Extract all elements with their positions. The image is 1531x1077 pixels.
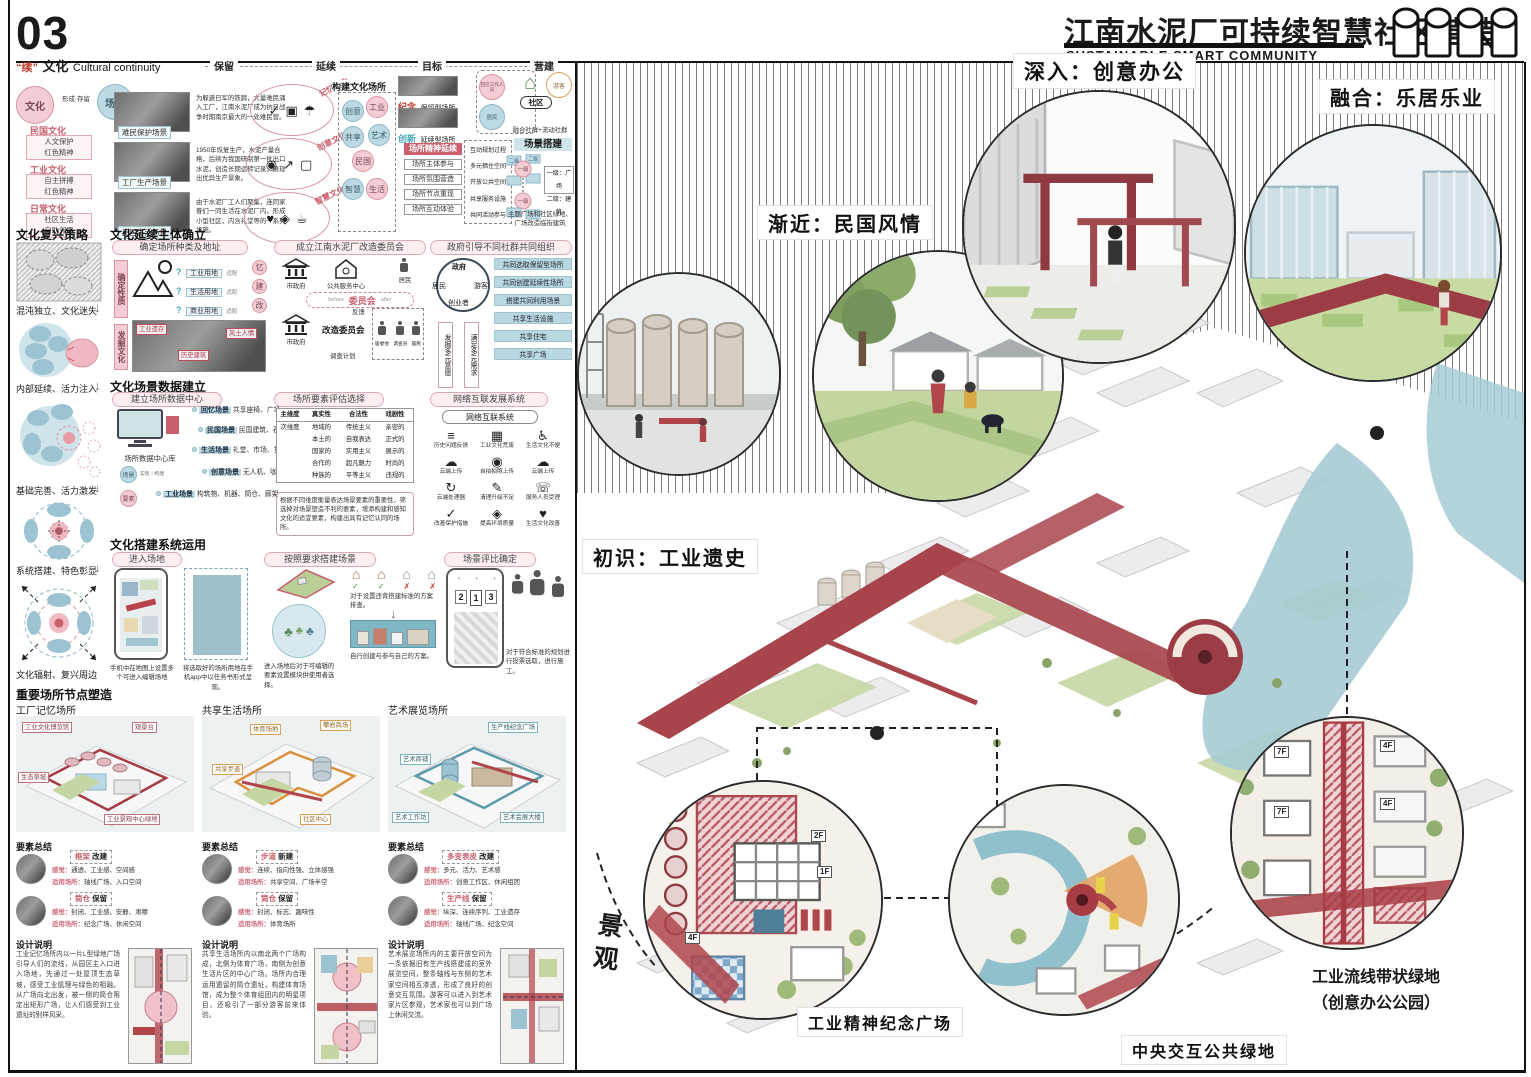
place-node-republic: 民国	[352, 150, 374, 172]
check-icon: ✓	[428, 506, 474, 521]
check-icon: ✓	[378, 582, 385, 591]
site-tag: 历史建筑	[178, 350, 209, 361]
link-realize: 实现	[140, 472, 150, 477]
network-label: 生活文化改善	[520, 521, 566, 528]
strategy-diagram-3	[16, 398, 102, 482]
vote-avatars: ◔◔◔	[456, 576, 496, 583]
view-circle-industrial-history	[577, 272, 781, 476]
place-node-smart: 智慧	[342, 178, 364, 200]
table-header: 戏剧性	[377, 409, 413, 421]
label-central-green: 中央交互公共绿地	[1122, 1036, 1286, 1064]
network-cell: ✓改善保护措施	[428, 506, 474, 528]
cross-icon: ✗	[429, 582, 436, 591]
voter-person-icon	[530, 570, 538, 589]
land-row: ? 生活用地 适配	[176, 281, 237, 299]
feel-value: 纵深、连续序列、工业遗存	[443, 909, 520, 916]
frame-left	[8, 0, 10, 1073]
land-type: 工业用地	[186, 269, 222, 278]
land-type: 商业用地	[186, 307, 222, 316]
scene-items: 构筑物、机器、筒仓、廊架	[197, 491, 279, 498]
element-verb: 保留	[472, 894, 487, 903]
enter-caption-1: 手机中在地图上设置多个可进入编辑场地	[108, 664, 176, 683]
scene-items: 共享座椅、广场	[233, 407, 281, 414]
guide-item: 共同创建延续性场所	[494, 276, 572, 288]
idea-icon: ◉	[266, 157, 277, 172]
bullet-icon	[192, 447, 197, 452]
phone-map-screen	[120, 578, 162, 652]
rank-box: 3	[485, 590, 497, 604]
committee-members: 居委会 调查员 居民	[372, 308, 424, 360]
house-icon: ⌂	[428, 566, 436, 582]
plan-circle-memorial-plaza: 2F 1F 4F	[643, 780, 883, 1020]
monitor-icon: ▢	[300, 157, 312, 172]
scene-data-row: 工业场景 构筑物、机器、筒仓、廊架	[156, 488, 278, 499]
table-body: 次维度 地域的 本土的 国家的 合作的 种族的 传统主义 自我表达 实用主义 超…	[277, 422, 413, 482]
evaluate-pill: 场所要素评估选择	[274, 392, 384, 407]
label-linear-green-line1: 工业流线带状绿地	[1306, 962, 1446, 988]
vote-caption: 对于符合标准的规划进行投票选取，进行施工。	[506, 648, 572, 676]
summary-title: 要素总结	[16, 840, 52, 853]
hub-label: 场所数据中心库	[112, 454, 188, 465]
question-mark: ?	[176, 305, 182, 315]
vote-ranks: 2 1 3	[455, 590, 497, 606]
evaluate-note: 根据不同维度衡量表达场景要素的重要性，筛选掉对场景塑造不利的要素，增添构建和感知…	[276, 492, 414, 536]
network-label: 服务人员受理	[520, 495, 566, 502]
network-label: 云端上传	[428, 469, 474, 476]
flow-label-goal: 目标	[418, 58, 446, 73]
guide-item: 共享住宅	[494, 330, 572, 342]
level2-node: 二级	[528, 156, 538, 163]
place-tag: 共享步道	[212, 764, 243, 775]
network-cell: ☁云端上传	[520, 454, 566, 476]
network-label: 云端处理器	[428, 495, 474, 502]
element-tagbox: 生产线 保留	[442, 892, 492, 906]
task-doc	[193, 575, 241, 655]
scene-tag: 回忆场景	[199, 407, 231, 414]
avatar-icon: ◔	[492, 576, 496, 583]
guide-pill: 政府引导不同社群共同组织	[430, 240, 572, 255]
cycle-gov: 政府	[452, 262, 466, 272]
goal-list: 互动规划过程 多元栖住空间 开放公共空间 共享服务设施 共同活动参与	[464, 140, 512, 224]
culture-item: 人文保护	[27, 136, 91, 147]
element-verb: 保留	[92, 894, 107, 903]
map-green	[140, 580, 158, 590]
element-tagbox: 多变表皮 改建	[442, 850, 499, 864]
map-water	[122, 582, 138, 596]
label-linear-green: 工业流线带状绿地 （创意办公公园）	[1306, 962, 1446, 1014]
plan-label: 调查计划	[330, 352, 370, 361]
feel-label: 感觉：	[52, 909, 71, 916]
network-cell: ♿生活文化不便	[520, 428, 566, 450]
feel-label: 感觉：	[424, 867, 443, 874]
place-tag: 攀岩商场	[320, 720, 351, 731]
network-label: 提高环境质量	[474, 521, 520, 528]
list-icon: ≡	[428, 428, 474, 443]
culture-item: 社区生活	[27, 214, 91, 225]
data-center-computer-icon	[116, 408, 182, 452]
table-cell: 国家的	[303, 446, 340, 458]
table-header: 主维度	[277, 409, 303, 421]
strategy-title: 文化复兴策略	[16, 226, 88, 243]
design-text: 工业记忆场所内以一片L型绿地广场引导人们的流线，从园区主入口进入场地，先通过一处…	[16, 950, 120, 1022]
strategy-step: 内部延续、活力注入	[16, 382, 97, 395]
goal-item: 开放公共空间	[470, 177, 506, 186]
site-vertical-label-2: 发掘文化	[114, 324, 128, 370]
use-value: 共享空间、广场半空	[270, 879, 328, 886]
continuity-title-en: Cultural continuity	[73, 62, 160, 74]
house-icon: ⌂	[402, 566, 410, 582]
down-arrow-icon: ↓	[94, 300, 101, 315]
plan-memorial	[645, 782, 881, 1018]
callout-republic-charm: 渐近：民国风情	[758, 206, 932, 239]
strategy-step: 混沌独立、文化迷失	[16, 304, 97, 317]
after-label: after	[381, 297, 392, 303]
feel-label: 感觉：	[52, 867, 71, 874]
table-cell: 时尚的	[377, 458, 413, 470]
robot-icon: ♥	[266, 211, 274, 226]
design-plan-thumb	[314, 948, 378, 1064]
committee-pill: 成立江南水泥厂改造委员会	[274, 240, 426, 255]
floor-label: 2F	[811, 830, 826, 842]
committee-flow: before 委员会 after	[306, 292, 414, 308]
plan-circle-linear-green: 7F 4F 7F 4F	[1230, 716, 1464, 950]
wheelchair-icon: ♿	[520, 428, 566, 443]
land-row: ? 商业用地 适配	[176, 300, 237, 318]
table-cell: 地域的	[303, 422, 340, 434]
element-thumb	[202, 896, 232, 926]
feel-value: 封闭、工业感、安静、肃穆	[71, 909, 148, 916]
element-tag: 框架	[75, 852, 90, 861]
strategy-step: 系统搭建、特色彰显	[16, 564, 97, 577]
iso-site-tile	[268, 566, 338, 600]
table-cell: 超凡魅力	[340, 458, 377, 470]
land-type: 生活用地	[186, 288, 222, 297]
voter-person-icon	[552, 576, 560, 595]
guide-item: 共享广场	[494, 348, 572, 360]
vote-pill: 场景评比确定	[444, 552, 536, 567]
down-arrow-icon: ↓	[390, 606, 397, 621]
culture-item: 自主拼搏	[27, 175, 91, 186]
element-verb: 改建	[92, 852, 107, 861]
tree-icon: ♣	[296, 625, 303, 637]
phone-map	[114, 568, 168, 660]
place-tag: 艺术工作坊	[392, 812, 429, 823]
table-cell: 亲密的	[377, 422, 413, 434]
scheme-marks: ✓ ✓ ✗ ✗	[352, 582, 436, 591]
rank-box: 1	[470, 590, 482, 606]
down-arrow-icon: ↓	[94, 378, 101, 393]
house-icon: ⌂	[352, 566, 360, 582]
spirit-item: 场所主体参与	[404, 159, 462, 170]
culture-item: 红色精神	[27, 147, 91, 158]
resident-person-icon	[400, 258, 408, 277]
land-target: 改	[252, 298, 267, 313]
design-text: 共享生活场所内以南北两个广场构成，北侧为体育广场，南侧为创意生活片区的中心广场。…	[202, 950, 306, 1022]
feel-value: 连续、指向性强、立体感强	[257, 867, 334, 874]
bullet-icon	[202, 469, 207, 474]
service-center-icon	[334, 258, 358, 280]
map-road	[126, 598, 157, 611]
goal-item: 共享服务设施	[470, 194, 506, 203]
brush-icon: ✎	[474, 480, 520, 495]
scene-small-node: 场景	[120, 466, 137, 483]
scene-build-legend: 一级：广场 二级：建筑	[544, 166, 574, 194]
process-icon: ↻	[428, 480, 474, 495]
network-label: 云端上传	[520, 469, 566, 476]
frame-bottom	[8, 1070, 1526, 1073]
cross-icon: ✗	[404, 582, 411, 591]
strategy-diagram-2	[16, 320, 102, 380]
page-number: 03	[16, 6, 69, 60]
goal-item: 互动规划过程	[470, 145, 506, 154]
nodes-title: 重要场所节点塑造	[16, 686, 112, 703]
table-cell: 正式的	[377, 434, 413, 446]
street-house	[373, 628, 387, 645]
use-value: 轴线广场、入口空间	[84, 879, 142, 886]
resident-label: 居民	[392, 276, 418, 285]
place-name: 艺术展览场所	[388, 702, 448, 717]
mountain-icon	[132, 258, 174, 300]
land-target: 忆	[252, 260, 267, 275]
map-plaza	[124, 618, 138, 632]
hub-links: 实现｜构建	[140, 470, 164, 477]
network-label: 工业文化荒废	[474, 443, 520, 450]
view-circle-happy-living	[1244, 124, 1502, 382]
element-tag: 步道	[261, 852, 276, 861]
use-label: 适用场所：	[52, 921, 84, 928]
tree-icon: ♣	[306, 624, 314, 638]
scheme-houses: ⌂ ⌂ ⌂ ⌂	[352, 566, 436, 582]
link-build: 构建	[154, 472, 164, 477]
element-tag: 筒仓	[261, 894, 276, 903]
person-icon: ☂	[304, 103, 316, 118]
continuity-title-cn: 文化	[42, 59, 68, 74]
street-house	[407, 629, 429, 645]
network-label: 自拍拍照上传	[474, 469, 520, 476]
bullet-icon	[156, 491, 161, 496]
place-image-art-exhibition: 艺术商铺 生产线纪念广场 艺术工作坊 艺术会展大楼	[388, 716, 566, 832]
service-center-label: 公共服务中心	[324, 282, 368, 291]
floor-label: 4F	[1380, 798, 1395, 810]
place-tag: 工业景观中心绿地	[104, 814, 160, 825]
feel-label: 感觉：	[238, 909, 257, 916]
place-tag: 社区中心	[300, 814, 331, 825]
scene-creative	[964, 92, 1234, 362]
table-cell: 展示的	[377, 446, 413, 458]
table-cell: 平等主义	[340, 470, 377, 482]
table-cell: 传统主义	[340, 422, 377, 434]
community-pill: 社区	[520, 96, 552, 109]
table-cell: 自我表达	[340, 434, 377, 446]
network-cell: ◉自拍拍照上传	[474, 454, 520, 476]
use-value: 轴线广场、纪念空间	[456, 921, 514, 928]
member-label: 居委会	[375, 340, 389, 347]
label-memorial-plaza: 工业精神纪念广场	[798, 1008, 962, 1036]
bullet-icon	[192, 407, 197, 412]
element-tag: 生产线	[447, 894, 470, 903]
network-box: 网络互联系统	[442, 410, 538, 424]
cloud-upload-icon: ☁	[428, 454, 474, 469]
floor-label: 7F	[1274, 746, 1289, 758]
place-node-share: 共享	[342, 126, 364, 148]
spirit-item: 场所节点重现	[404, 189, 462, 200]
member-label: 调查员	[393, 340, 407, 347]
place-spirit-banner: 场所精神延续	[404, 143, 462, 155]
network-cell: ↻云端处理器	[428, 480, 474, 502]
element-thumb	[388, 896, 418, 926]
medic-icon: ▣	[285, 103, 297, 118]
scene-industrial	[579, 274, 779, 474]
photo-caption: 工厂生产场景	[118, 176, 171, 189]
network-label: 历史问题反馈	[428, 443, 474, 450]
avatar-icon: ◔	[474, 576, 478, 583]
map-blocks	[142, 616, 158, 634]
site-tag: 风土人情	[226, 328, 257, 339]
strategy-step: 基础完善、活力激发	[16, 484, 97, 497]
guide-item: 搭建共同利用场景	[494, 294, 572, 306]
rank-box: 2	[455, 590, 467, 604]
committee-label: 委员会	[349, 294, 376, 307]
use-value: 体育场所	[270, 921, 296, 928]
table-col-authenticity: 地域的 本土的 国家的 合作的 种族的	[303, 422, 340, 482]
strategy-diagram-4	[16, 500, 102, 562]
table-subdim: 次维度	[277, 422, 303, 482]
table-header-row: 主维度 真实性 合法性 戏剧性	[277, 409, 413, 422]
worker-role-node: 回迁工作人员	[479, 74, 505, 100]
cycle-entrepreneur: 创业者	[448, 298, 469, 308]
network-cell: ☁云端上传	[428, 454, 474, 476]
enter-caption-2: 将选取好的场所用地在手机app中以任务书形式呈现。	[182, 664, 254, 692]
culture-group-items: 人文保护 红色精神	[26, 135, 92, 160]
network-label: 生活文化不便	[520, 443, 566, 450]
element-thumb	[16, 854, 46, 884]
guide-vertical-2: 满足多元需求	[464, 322, 479, 388]
member: 居民	[411, 321, 421, 347]
place-tag: 生产线纪念广场	[488, 722, 538, 733]
use-label: 适用场所：	[424, 921, 456, 928]
element-tag: 多变表皮	[447, 852, 477, 861]
floor-label: 4F	[685, 932, 700, 944]
place-node-industry: 工业	[366, 96, 388, 118]
system-use-title: 文化搭建系统运用	[110, 536, 206, 553]
build-caption-3: 自行创建与参与自己的方案。	[350, 652, 436, 661]
avatar-icon: ◔	[456, 576, 460, 583]
level1-node: 一级	[517, 165, 529, 173]
feel-label: 感觉：	[238, 867, 257, 874]
strategy-step: 文化辐射、复兴周边	[16, 668, 97, 681]
culture-group-items: 自主拼搏 红色精神	[26, 174, 92, 199]
element-thumb	[202, 854, 232, 884]
scene-tag: 生活场景	[199, 447, 231, 454]
element-verb: 新建	[278, 852, 293, 861]
member: 调查员	[393, 321, 407, 347]
street-house	[391, 632, 403, 645]
culture-node: 文化	[16, 86, 54, 124]
place-tag: 工业文化博览馆	[22, 722, 72, 733]
table-header: 真实性	[303, 409, 340, 421]
plan-circle-central-green	[948, 784, 1180, 1016]
design-text: 艺术展览场所内的主要开放空间为一条依据旧有生产线搭建成的室外展览空间，整条轴线与…	[388, 950, 492, 1022]
share-icon: ↗	[283, 157, 294, 172]
use-value: 创意工作区、休闲组团	[456, 879, 520, 886]
cycle-resident: 居民	[432, 281, 446, 291]
floor-label: 7F	[1274, 806, 1289, 818]
check-icon: ✓	[352, 582, 359, 591]
spirit-item: 场所氛围营造	[404, 174, 462, 185]
shield-icon: ◈	[280, 211, 290, 226]
use-label: 适用场所：	[52, 879, 84, 886]
scene-data-row: 民国场景 民国建筑、石路	[198, 424, 286, 435]
scene-build-title: 场景搭建	[514, 138, 572, 151]
community-caption: 融合社群+流动社群	[506, 126, 574, 135]
place-image-shared-life: 体育场地 攀岩商场 共享步道 社区中心	[202, 716, 380, 832]
government-bank-icon	[282, 258, 310, 280]
vote-plan-preview	[454, 612, 498, 664]
network-label: 清理升级不足	[474, 495, 520, 502]
network-cell: ☏服务人员受理	[520, 480, 566, 502]
spirit-item: 场所互动体验	[404, 204, 462, 215]
view-circle-creative-office	[962, 90, 1236, 364]
callout-industrial-history: 初识：工业遗史	[583, 540, 757, 573]
place-node-art: 艺术	[368, 124, 390, 146]
design-plan-thumb	[500, 948, 564, 1064]
flow-label-retain: 保留	[210, 58, 238, 73]
build-caption-1: 进入场地后对于可编辑的要素设置模块供使用者选择。	[264, 662, 340, 690]
use-label: 适用场所：	[424, 879, 456, 886]
network-cell: ♥生活文化改善	[520, 506, 566, 528]
place-node-creative: 创意	[342, 100, 364, 122]
element-tagbox: 筒仓 保留	[70, 892, 112, 906]
culture-item: 红色精神	[27, 186, 91, 197]
down-arrow-icon: ↓	[94, 480, 101, 495]
frame-right	[1524, 62, 1526, 1070]
place-tag: 体育场地	[250, 724, 281, 735]
floor-label: 4F	[1380, 740, 1395, 752]
continuity-quote: “续”	[16, 62, 38, 74]
network-cell: ▦工业文化荒废	[474, 428, 520, 450]
table-cell: 合作的	[303, 458, 340, 470]
network-cell: ✎清理升级不足	[474, 480, 520, 502]
place-tag: 艺术商铺	[400, 754, 431, 765]
use-label: 适用场所：	[238, 879, 270, 886]
feel-label: 感觉：	[424, 909, 443, 916]
plan-central-green	[950, 786, 1178, 1014]
feel-value: 通透、工业感、空间感	[71, 867, 135, 874]
callout-happy-living: 融合：乐居乐业	[1320, 80, 1494, 113]
floor-label: 1F	[817, 866, 832, 878]
callout-creative-office: 深入：创意办公	[1014, 54, 1195, 88]
legend-level1: 一级：广场	[545, 167, 573, 193]
table-cell: 本土的	[303, 434, 340, 446]
voter-person-icon	[512, 574, 520, 593]
place-tag: 艺术会展大楼	[500, 812, 544, 823]
scene-living	[1246, 126, 1500, 380]
cement-silos-logo	[1390, 4, 1522, 58]
headset-icon: ☏	[520, 480, 566, 495]
evaluate-table: 主维度 真实性 合法性 戏剧性 次维度 地域的 本土的 国家的 合作的 种族的 …	[276, 408, 414, 483]
council-label: 改造委员会	[322, 324, 365, 336]
strategy-diagram-5	[16, 580, 102, 666]
coffee-icon: ☕	[296, 211, 308, 226]
photo-caption: 难民保护场景	[118, 126, 171, 139]
government-bank-icon	[282, 314, 310, 336]
element-thumb	[388, 854, 418, 884]
level2-node: 二级	[509, 158, 519, 165]
network-label: 改善保护措施	[428, 521, 474, 528]
visitor-role-node: 游客	[546, 72, 572, 98]
feel-value: 封闭、标志、趣味性	[257, 909, 315, 916]
plan-linear-green	[1232, 718, 1462, 948]
